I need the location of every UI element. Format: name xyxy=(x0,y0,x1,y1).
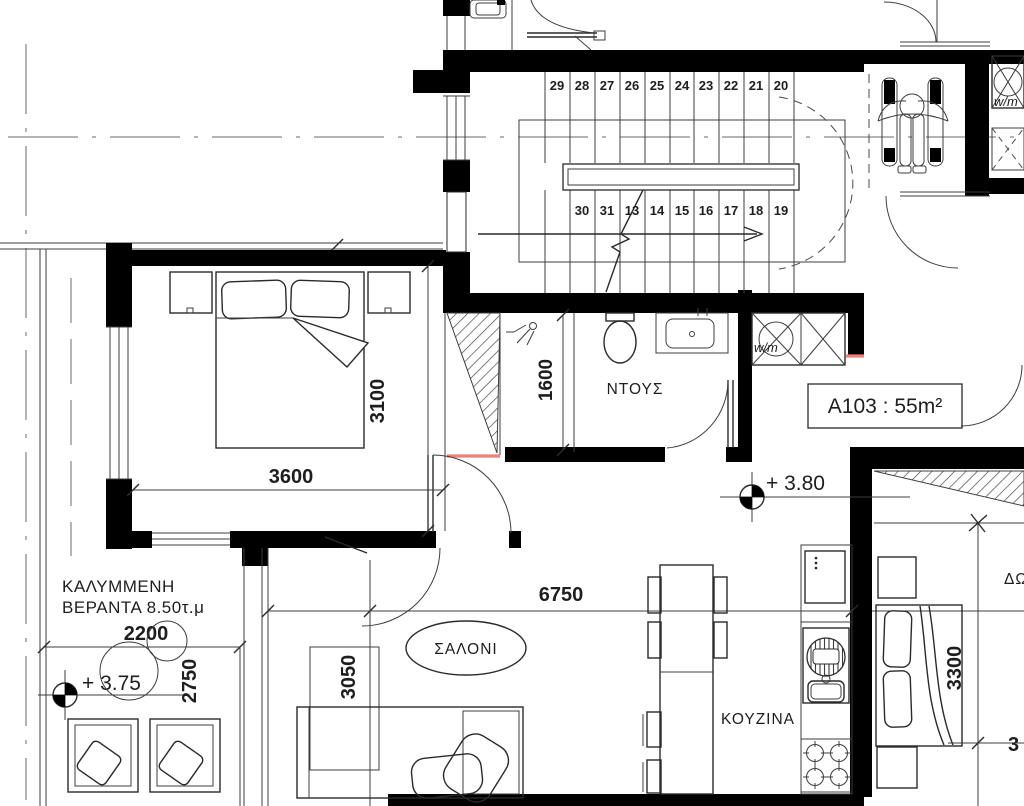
door-swing-arc xyxy=(961,365,1022,426)
nightstand xyxy=(170,272,212,313)
stair-step: 16 xyxy=(699,203,713,218)
cushion xyxy=(75,739,122,786)
hob xyxy=(801,739,852,792)
pillow xyxy=(883,611,912,668)
stair-step: 20 xyxy=(774,78,788,93)
kitchen: ΚΟΥΖΙΝΑ xyxy=(643,545,852,794)
room-label-veranda-1: ΚΑΛΥΜΜΕΝΗ xyxy=(62,577,175,596)
stair-step: 22 xyxy=(724,78,738,93)
washer-label: w/m xyxy=(754,340,778,355)
washer-closet: w/m xyxy=(752,313,864,365)
bathroom-door xyxy=(667,380,733,448)
adjacent-bedroom: 3300 3 ΔΩ xyxy=(874,365,1024,806)
room-label-living: ΣΑΛΟΝΙ xyxy=(434,641,498,658)
chair xyxy=(648,622,661,658)
shaft-box-top-right xyxy=(992,128,1024,170)
dim-living-width: 6750 xyxy=(262,584,1024,617)
stair-step: 21 xyxy=(749,78,763,93)
armchair xyxy=(150,719,220,792)
veranda: ΚΑΛΥΜΜΕΝΗ ΒΕΡΑΝΤΑ 8.50τ.μ 2200 2750 xyxy=(38,548,246,806)
pillow xyxy=(290,280,349,318)
dim-text: 3600 xyxy=(269,466,314,488)
dim-text: 2750 xyxy=(179,659,201,704)
sofa xyxy=(297,707,523,806)
chair xyxy=(714,622,727,658)
floor-plan: 29 28 27 26 25 24 23 22 21 20 30 31 13 1… xyxy=(0,0,1024,806)
wheelchair-icon xyxy=(878,78,948,173)
top-wc xyxy=(470,0,605,50)
door-swing-arc-top xyxy=(884,2,936,42)
stair-step: 28 xyxy=(575,78,589,93)
cushion xyxy=(410,752,484,799)
bedroom-door xyxy=(428,455,511,533)
dim-text: 1600 xyxy=(536,359,557,401)
stair-step: 27 xyxy=(600,78,614,93)
room-label-kitchen: ΚΟΥΖΙΝΑ xyxy=(721,711,795,728)
kitchen-sink xyxy=(803,628,849,703)
dim-bedroom-width: 3600 xyxy=(127,466,449,496)
stair-step: 14 xyxy=(650,203,665,218)
door-swing-arc-apartment xyxy=(886,196,958,268)
level-text: + 3.80 xyxy=(766,472,825,495)
dim-shower-depth: 1600 xyxy=(536,309,569,456)
door-swing-arc xyxy=(531,0,594,33)
nightstand xyxy=(877,747,917,788)
nightstand xyxy=(878,557,916,598)
stair-step: 30 xyxy=(575,203,589,218)
level-text: + 3.75 xyxy=(82,672,141,695)
shower-head-icon xyxy=(506,323,537,346)
stair-step: 24 xyxy=(675,78,690,93)
stair-handrail xyxy=(563,164,799,190)
dim-text: 3 xyxy=(1008,734,1019,756)
room-label-veranda-2: ΒΕΡΑΝΤΑ 8.50τ.μ xyxy=(62,598,204,617)
balcony-railing xyxy=(0,239,443,806)
stair-step: 26 xyxy=(625,78,639,93)
stair-step: 13 xyxy=(625,203,639,218)
dim-living-depth: 3050 xyxy=(338,560,370,806)
stair-step: 18 xyxy=(749,203,763,218)
fridge xyxy=(805,551,845,603)
armchair xyxy=(68,719,138,792)
dim-right-partial: 3 xyxy=(948,734,1024,756)
insulation-hatch xyxy=(874,471,1024,506)
unit-label: A103 : 55m² xyxy=(808,384,962,428)
stair-step: 19 xyxy=(774,203,788,218)
living-door xyxy=(325,537,440,626)
shaft-hatch xyxy=(445,313,500,531)
chair xyxy=(647,712,661,747)
toilet xyxy=(604,313,636,363)
cushion xyxy=(157,739,204,786)
dining-table xyxy=(643,565,727,794)
floor-plan-drawing: 29 28 27 26 25 24 23 22 21 20 30 31 13 1… xyxy=(0,0,1024,806)
chair xyxy=(648,577,661,613)
dim-text: 3300 xyxy=(944,646,966,691)
dim-text: 3050 xyxy=(338,655,360,700)
stair-step: 15 xyxy=(675,203,689,218)
kitchen-counter xyxy=(801,545,852,794)
dim-bedroom-depth: 3100 xyxy=(367,260,434,537)
nightstand xyxy=(368,272,410,313)
door-leaf xyxy=(527,33,597,37)
dim-text: 6750 xyxy=(539,584,584,606)
stair-step: 31 xyxy=(600,203,614,218)
dim-text: 3100 xyxy=(367,379,389,424)
sink xyxy=(656,308,728,353)
washer-label: w/m xyxy=(994,94,1018,109)
unit-label-text: A103 : 55m² xyxy=(828,395,942,418)
pillow xyxy=(221,280,286,319)
stair-step: 23 xyxy=(699,78,713,93)
room-label-shower: ΝΤΟΥΣ xyxy=(607,381,664,398)
stair-step: 25 xyxy=(650,78,664,93)
stair-numbers: 29 28 27 26 25 24 23 22 21 20 30 31 13 1… xyxy=(550,78,788,218)
stair-step: 17 xyxy=(724,203,738,218)
stairwell: 29 28 27 26 25 24 23 22 21 20 30 31 13 1… xyxy=(478,72,853,293)
bathroom: 1600 ΝΤΟΥΣ xyxy=(445,308,733,531)
chair xyxy=(647,760,661,793)
chair xyxy=(714,577,727,613)
dim-veranda-width: 2200 xyxy=(38,623,246,653)
room-label-adjacent: ΔΩ xyxy=(1004,571,1024,588)
pillow xyxy=(883,671,912,728)
stair-step: 29 xyxy=(550,78,564,93)
level-marker-hall: + 3.80 xyxy=(720,472,910,522)
dim-adjacent-depth: 3300 xyxy=(944,523,984,806)
blanket-fold xyxy=(293,318,368,367)
